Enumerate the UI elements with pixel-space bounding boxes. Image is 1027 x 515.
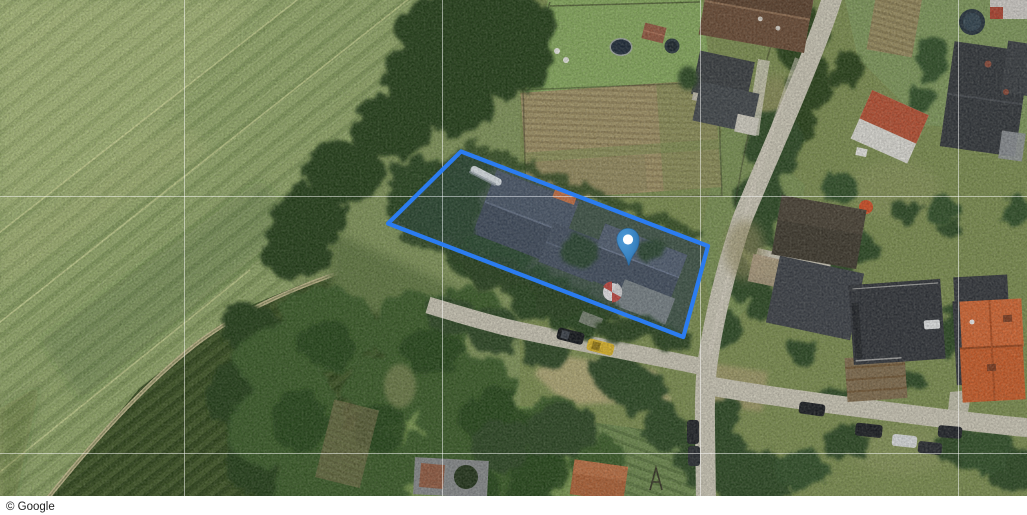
svg-text:© Google: © Google xyxy=(6,501,55,513)
